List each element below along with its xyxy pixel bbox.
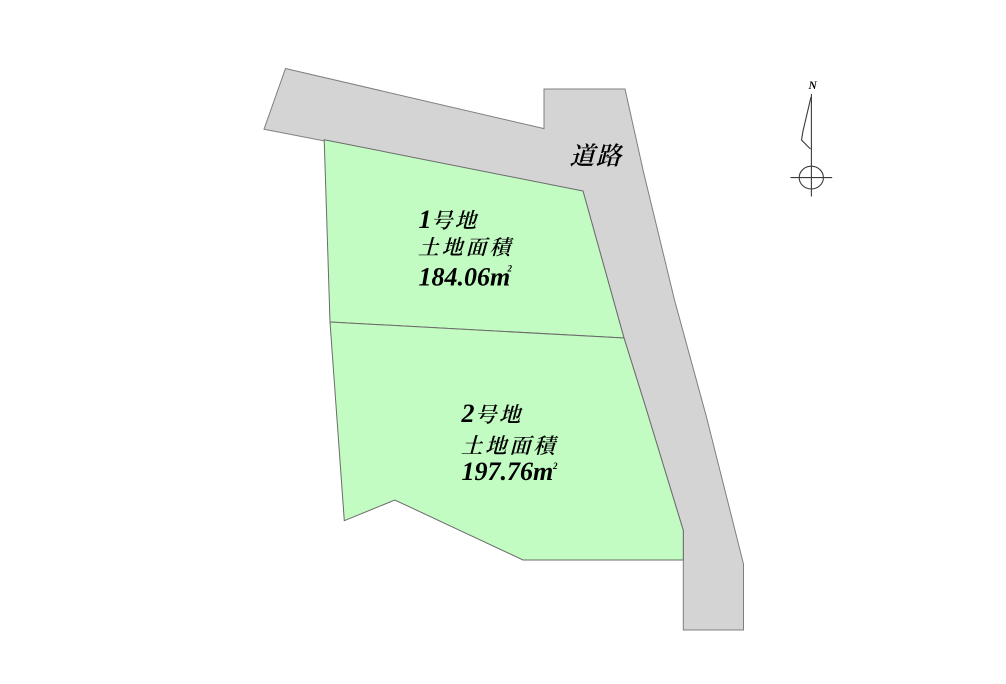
- svg-text:2: 2: [552, 461, 558, 471]
- svg-text:2: 2: [507, 264, 513, 274]
- svg-text:1: 1: [419, 205, 432, 234]
- svg-text:N: N: [808, 80, 818, 92]
- svg-text:184.06m: 184.06m: [419, 263, 511, 292]
- svg-text:197.76m: 197.76m: [462, 457, 554, 486]
- svg-text:2: 2: [461, 399, 475, 428]
